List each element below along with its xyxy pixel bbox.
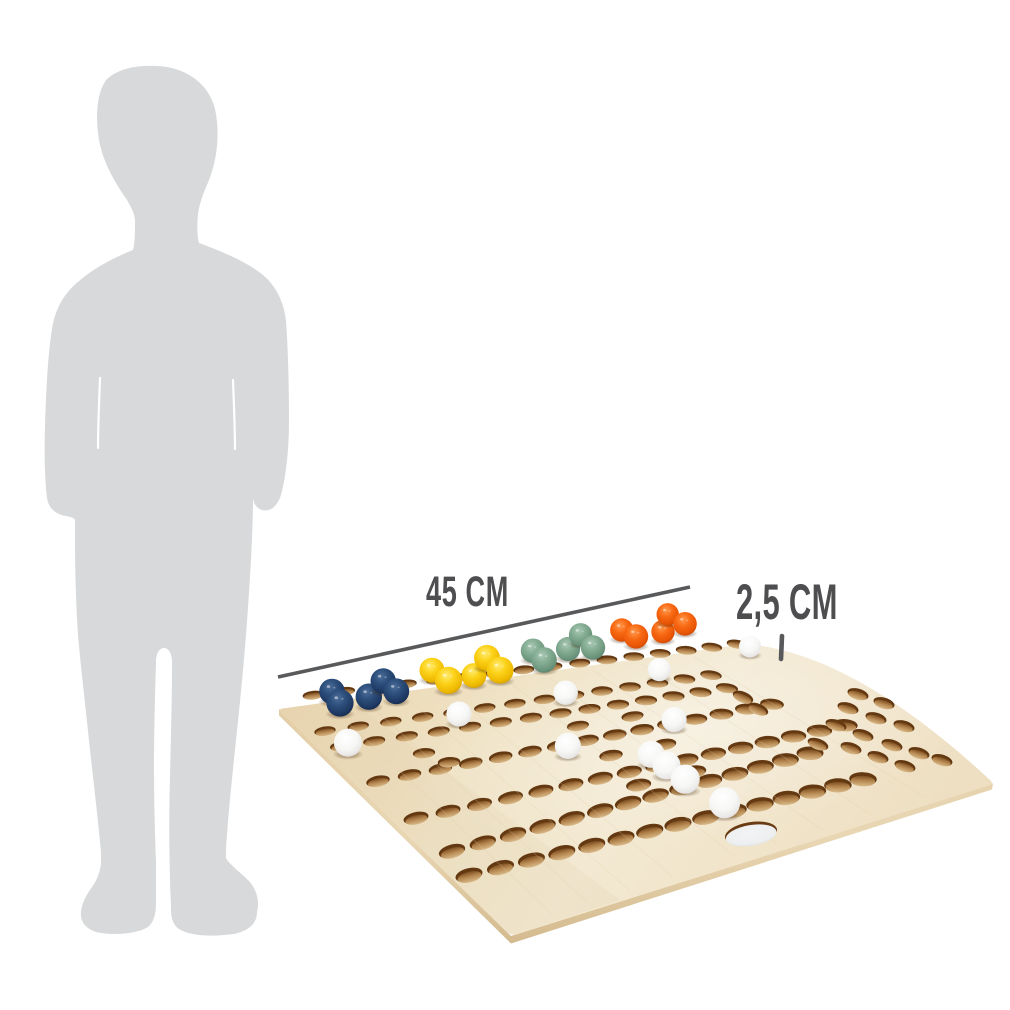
svg-text:2,5 CM: 2,5 CM bbox=[736, 573, 838, 629]
svg-text:45 CM: 45 CM bbox=[426, 567, 509, 616]
